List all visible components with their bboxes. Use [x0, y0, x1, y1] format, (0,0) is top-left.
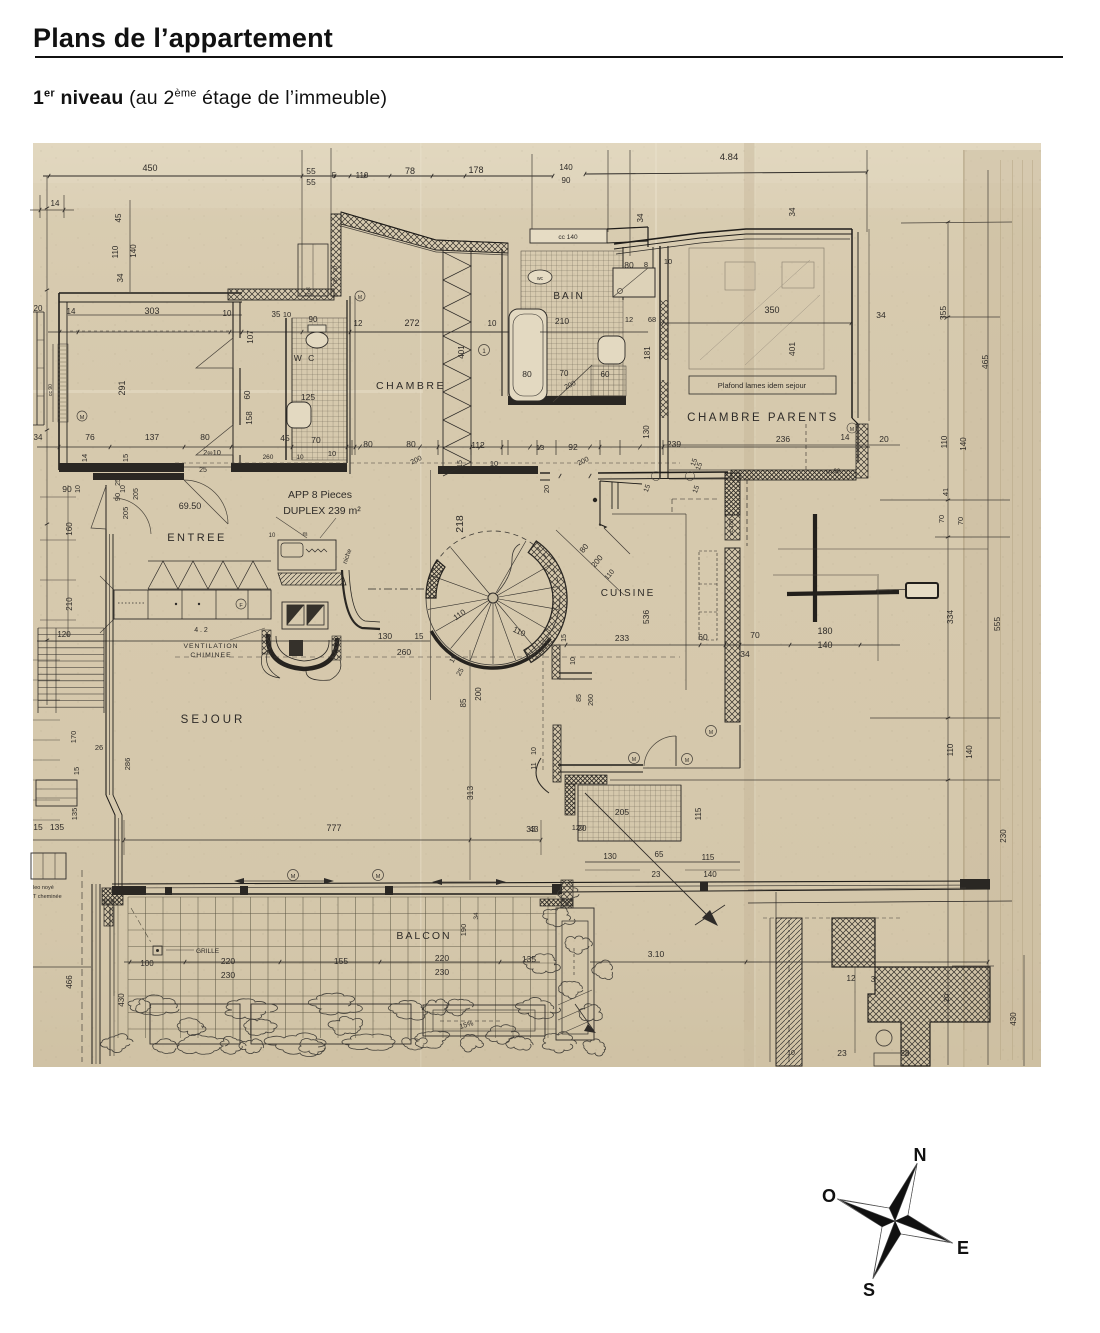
svg-text:cc 180: cc 180: [729, 519, 735, 535]
svg-text:260: 260: [397, 647, 411, 657]
svg-text:23: 23: [837, 1048, 847, 1058]
svg-text:T cheminée: T cheminée: [33, 894, 62, 900]
svg-text:34: 34: [34, 433, 43, 442]
svg-text:155: 155: [334, 956, 348, 966]
svg-text:218: 218: [454, 515, 466, 533]
svg-text:m: m: [303, 532, 308, 538]
svg-text:CUISINE: CUISINE: [601, 588, 656, 599]
svg-text:140: 140: [965, 745, 974, 759]
svg-text:cc 90: cc 90: [826, 469, 841, 475]
svg-text:272: 272: [404, 318, 419, 328]
svg-text:110: 110: [940, 435, 949, 448]
svg-text:233: 233: [615, 633, 629, 643]
svg-text:178: 178: [468, 165, 483, 175]
svg-text:3: 3: [871, 975, 876, 984]
svg-text:8: 8: [644, 260, 648, 269]
svg-text:15: 15: [33, 822, 43, 832]
svg-text:20: 20: [578, 824, 587, 833]
svg-text:15: 15: [561, 634, 568, 642]
svg-text:34: 34: [636, 213, 645, 222]
svg-text:112: 112: [471, 440, 485, 450]
svg-text:10: 10: [283, 310, 291, 319]
svg-text:cc 90: cc 90: [48, 384, 54, 396]
svg-text:10: 10: [531, 747, 538, 755]
svg-text:85: 85: [576, 694, 583, 702]
svg-text:130: 130: [378, 631, 392, 641]
svg-text:28: 28: [901, 1049, 910, 1058]
svg-text:15: 15: [72, 767, 81, 775]
svg-text:M: M: [358, 295, 362, 301]
svg-text:465: 465: [980, 355, 990, 369]
svg-text:286: 286: [123, 758, 132, 771]
svg-text:26: 26: [95, 743, 103, 752]
svg-text:60: 60: [243, 390, 252, 399]
svg-text:CHIMINEE: CHIMINEE: [190, 652, 231, 659]
svg-text:20: 20: [542, 485, 551, 493]
svg-text:wc: wc: [537, 276, 544, 282]
svg-text:20: 20: [34, 304, 43, 313]
svg-text:Plafond lames idem sejour: Plafond lames idem sejour: [718, 381, 807, 390]
svg-text:220: 220: [435, 953, 449, 963]
svg-text:107: 107: [246, 330, 255, 344]
svg-text:10: 10: [120, 485, 127, 493]
svg-text:2∞10: 2∞10: [203, 448, 221, 457]
svg-text:34: 34: [876, 310, 886, 320]
svg-text:430: 430: [117, 993, 126, 1007]
svg-text:ENTREE: ENTREE: [167, 532, 227, 544]
svg-text:34: 34: [740, 649, 750, 659]
svg-text:210: 210: [555, 316, 569, 326]
svg-text:O: O: [822, 1186, 836, 1206]
svg-text:55: 55: [306, 166, 316, 176]
svg-text:350: 350: [764, 305, 779, 315]
svg-text:10: 10: [223, 309, 232, 318]
svg-text:70: 70: [750, 630, 760, 640]
svg-text:303: 303: [144, 306, 159, 316]
svg-text:12: 12: [847, 974, 856, 983]
svg-text:466: 466: [65, 975, 74, 989]
svg-text:34: 34: [788, 207, 797, 216]
svg-text:80: 80: [522, 369, 532, 379]
svg-text:260: 260: [263, 454, 274, 461]
svg-text:90: 90: [113, 493, 122, 501]
svg-text:M: M: [685, 758, 689, 764]
svg-text:GRILLE: GRILLE: [196, 948, 220, 955]
svg-text:430: 430: [1009, 1012, 1018, 1026]
svg-text:85: 85: [459, 698, 468, 707]
svg-text:65: 65: [655, 850, 664, 859]
svg-text:130: 130: [603, 852, 617, 861]
svg-text:130: 130: [642, 425, 651, 439]
svg-text:14: 14: [51, 199, 60, 208]
svg-text:10: 10: [75, 485, 82, 493]
svg-text:70: 70: [956, 517, 965, 525]
svg-text:10: 10: [490, 459, 498, 468]
svg-text:BAIN: BAIN: [553, 291, 584, 302]
svg-text:60: 60: [601, 370, 610, 379]
svg-text:110: 110: [946, 743, 955, 756]
svg-text:205: 205: [615, 807, 629, 817]
svg-text:137: 137: [145, 432, 159, 442]
svg-text:140: 140: [129, 244, 138, 258]
svg-text:cc: cc: [306, 286, 311, 291]
svg-text:20: 20: [942, 994, 951, 1002]
svg-text:CHAMBRE: CHAMBRE: [376, 380, 446, 392]
svg-text:158: 158: [245, 411, 254, 425]
svg-text:401: 401: [457, 345, 466, 359]
svg-text:SEJOUR: SEJOUR: [181, 714, 246, 726]
svg-text:236: 236: [776, 434, 790, 444]
svg-text:140: 140: [703, 870, 717, 879]
svg-text:181: 181: [643, 346, 652, 360]
svg-text:190: 190: [459, 924, 468, 937]
svg-text:10: 10: [787, 1050, 795, 1057]
svg-text:68: 68: [648, 315, 656, 324]
svg-text:15: 15: [415, 632, 424, 641]
svg-text:230: 230: [435, 967, 449, 977]
svg-text:536: 536: [641, 610, 651, 624]
svg-text:20: 20: [879, 434, 889, 444]
svg-text:110: 110: [356, 171, 369, 180]
svg-text:80: 80: [200, 432, 210, 442]
svg-text:15: 15: [457, 460, 464, 468]
svg-text:110: 110: [111, 245, 120, 258]
svg-text:220: 220: [221, 956, 235, 966]
svg-text:M: M: [291, 874, 296, 880]
svg-text:cc 140: cc 140: [558, 234, 578, 241]
svg-text:200: 200: [474, 687, 483, 701]
svg-text:M: M: [850, 427, 854, 433]
svg-text:125: 125: [301, 392, 315, 402]
svg-text:69.50: 69.50: [179, 501, 202, 511]
svg-text:175: 175: [304, 292, 312, 297]
svg-text:70: 70: [311, 435, 321, 445]
svg-text:43: 43: [530, 825, 539, 834]
svg-text:3.10: 3.10: [648, 949, 665, 959]
svg-text:76: 76: [85, 432, 95, 442]
svg-text:78: 78: [405, 166, 415, 176]
svg-text:450: 450: [142, 163, 157, 173]
svg-text:355: 355: [938, 306, 948, 320]
svg-text:10: 10: [328, 449, 336, 458]
svg-text:4.84: 4.84: [720, 152, 739, 163]
svg-text:W C: W C: [294, 353, 317, 363]
svg-text:140: 140: [817, 640, 832, 650]
svg-text:70: 70: [937, 515, 946, 523]
svg-text:VENTILATION: VENTILATION: [183, 643, 238, 650]
svg-text:M: M: [376, 874, 381, 880]
svg-text:80: 80: [363, 439, 373, 449]
svg-text:115: 115: [694, 807, 703, 820]
svg-text:leo noyé: leo noyé: [33, 885, 54, 891]
svg-text:115: 115: [702, 853, 715, 862]
svg-text:10: 10: [570, 657, 577, 665]
svg-text:14: 14: [67, 307, 76, 316]
svg-text:180: 180: [817, 626, 832, 636]
svg-text:777: 777: [326, 823, 341, 833]
svg-text:45: 45: [114, 213, 123, 222]
svg-text:34: 34: [473, 912, 480, 920]
svg-text:170: 170: [69, 731, 78, 744]
svg-text:140: 140: [959, 437, 968, 451]
svg-text:M: M: [709, 730, 713, 736]
svg-text:70: 70: [560, 369, 569, 378]
svg-text:90: 90: [62, 484, 72, 494]
svg-text:12: 12: [354, 319, 363, 328]
svg-text:35: 35: [272, 310, 281, 319]
svg-text:5: 5: [332, 171, 337, 180]
svg-text:10: 10: [664, 257, 672, 266]
svg-text:239: 239: [667, 439, 681, 449]
svg-text:100: 100: [140, 959, 154, 968]
svg-text:10: 10: [488, 319, 497, 328]
svg-text:34: 34: [116, 273, 125, 282]
svg-text:260: 260: [588, 694, 595, 706]
svg-text:14: 14: [841, 433, 850, 442]
svg-text:205: 205: [121, 507, 130, 520]
svg-text:15: 15: [121, 454, 130, 462]
svg-text:10: 10: [296, 454, 304, 461]
svg-text:401: 401: [787, 342, 797, 356]
svg-text:80: 80: [624, 260, 634, 270]
svg-text:334: 334: [945, 610, 955, 624]
svg-text:APP 8 Pieces: APP 8 Pieces: [288, 489, 352, 501]
svg-text:90: 90: [562, 176, 571, 185]
svg-text:160: 160: [65, 522, 74, 536]
svg-text:230: 230: [999, 829, 1008, 843]
svg-text:41: 41: [941, 488, 950, 496]
svg-text:230: 230: [221, 970, 235, 980]
svg-text:23: 23: [652, 870, 661, 879]
svg-text:555: 555: [992, 617, 1002, 631]
svg-text:140: 140: [559, 163, 573, 172]
svg-text:E: E: [957, 1238, 969, 1258]
svg-text:135: 135: [70, 808, 79, 821]
svg-text:DUPLEX 239 m²: DUPLEX 239 m²: [283, 505, 361, 517]
svg-text:S: S: [863, 1280, 875, 1300]
svg-text:210: 210: [65, 597, 74, 611]
svg-text:90: 90: [309, 315, 318, 324]
svg-text:205: 205: [133, 488, 140, 500]
svg-text:10: 10: [269, 533, 276, 539]
svg-text:55: 55: [306, 177, 316, 187]
svg-text:45: 45: [280, 433, 290, 443]
svg-text:14: 14: [80, 454, 89, 462]
svg-text:25: 25: [199, 467, 207, 474]
svg-text:12: 12: [625, 315, 633, 324]
svg-text:M: M: [80, 415, 85, 421]
svg-text:M: M: [632, 757, 636, 763]
svg-text:BALCON: BALCON: [396, 930, 451, 942]
svg-text:80: 80: [406, 439, 416, 449]
svg-text:4 . 2: 4 . 2: [194, 627, 208, 634]
svg-text:291: 291: [117, 380, 127, 395]
svg-text:N: N: [914, 1145, 927, 1165]
svg-text:135: 135: [50, 822, 64, 832]
svg-text:60: 60: [698, 632, 708, 642]
svg-text:CHAMBRE PARENTS: CHAMBRE PARENTS: [687, 412, 839, 424]
